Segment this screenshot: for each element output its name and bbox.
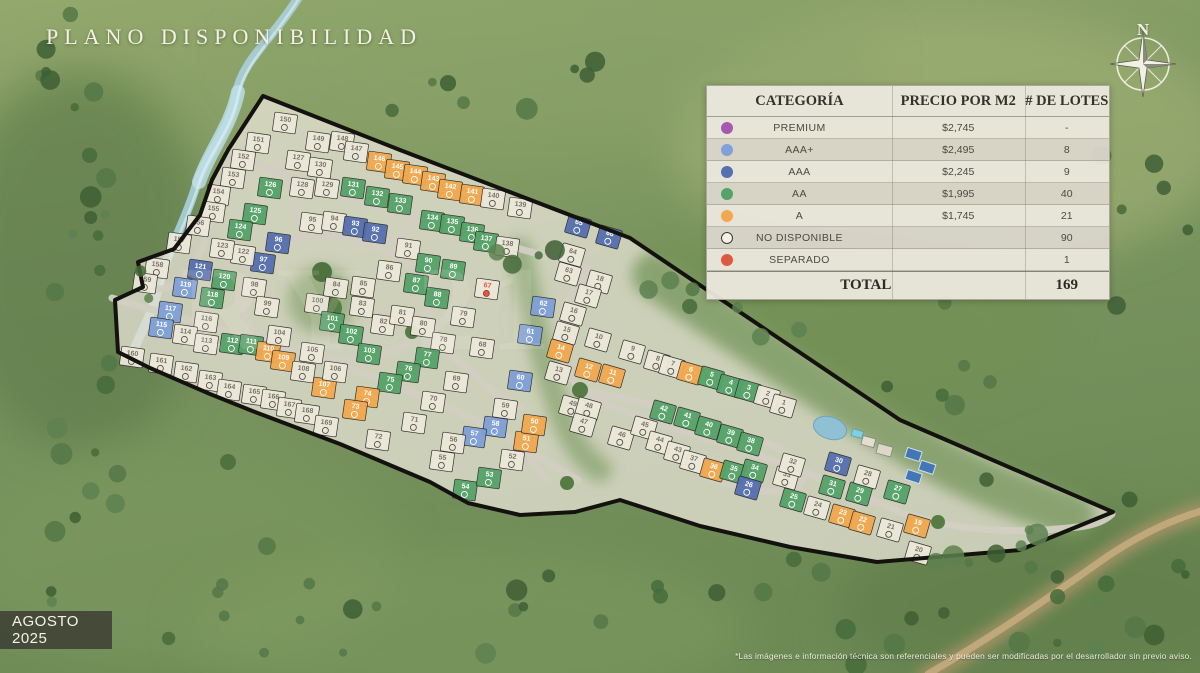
tree [754,583,772,601]
legend-header-row: CATEGORÍA PRECIO POR M2 # DE LOTES [707,86,1109,117]
tree [489,244,506,261]
svg-text:75: 75 [386,376,395,384]
svg-text:88: 88 [433,291,442,299]
lot-52: 52 [499,449,524,471]
svg-text:94: 94 [330,215,339,223]
tree [570,65,579,74]
svg-text:60: 60 [516,374,525,382]
compass-icon [1103,22,1183,106]
lot-119: 119 [172,277,197,299]
legend-category-label: A [796,210,803,222]
tree [82,148,97,163]
svg-text:99: 99 [263,300,272,308]
lot-121: 121 [187,259,212,281]
tree [516,98,538,120]
legend-category-label: PREMIUM [773,122,825,134]
tree [1117,204,1127,214]
legend-category-label: AA [792,188,807,200]
lot-151: 151 [245,132,270,154]
lot-96: 96 [265,232,290,254]
tree [440,75,456,91]
legend-price: $1,995 [892,188,1025,200]
lot-108: 108 [290,361,315,383]
legend-lot-count: 9 [1025,166,1109,178]
svg-text:54: 54 [461,483,470,491]
svg-text:76: 76 [404,365,413,373]
tree [580,67,595,82]
lot-150: 150 [272,112,297,134]
lot-104: 104 [266,325,291,347]
tree [506,579,527,600]
svg-text:62: 62 [539,300,548,308]
tree [1145,155,1163,173]
svg-text:96: 96 [274,236,283,244]
svg-text:70: 70 [429,395,438,403]
lot-71: 71 [401,412,426,434]
lot-68: 68 [469,337,494,359]
tree [938,607,950,619]
legend-row-aaa-: AAA+$2,4958 [707,139,1109,161]
lot-88: 88 [424,287,449,309]
tree [1107,296,1126,315]
tree [296,616,305,625]
date-badge-text: AGOSTO 2025 [0,613,112,647]
svg-text:87: 87 [412,277,421,285]
lot-56: 56 [440,432,465,454]
tree [63,7,78,22]
svg-text:95: 95 [308,216,317,224]
legend-total-value: 169 [1025,277,1109,294]
legend-price: $2,245 [892,166,1025,178]
legend-swatch [721,254,733,266]
tree [475,643,496,664]
lot-118: 118 [199,287,224,309]
tree [1182,225,1193,236]
lot-75: 75 [377,372,402,394]
tree [535,251,543,259]
tree [881,381,893,393]
tree [106,494,125,513]
svg-text:73: 73 [351,403,360,411]
tree [47,418,68,439]
svg-text:91: 91 [404,242,413,250]
tree [68,229,77,238]
legend-price: $1,745 [892,210,1025,222]
tree [372,601,382,611]
tree [101,210,110,219]
legend-row-separado: SEPARADO1 [707,249,1109,271]
tree [97,376,115,394]
tree [682,299,697,314]
tree [101,355,118,372]
tree [84,82,103,101]
tree [339,649,347,657]
lot-106: 106 [322,361,347,383]
tree [70,512,81,523]
page-title: PLANO DISPONIBILIDAD [46,24,422,50]
legend-lot-count: 90 [1025,232,1109,244]
tree [1157,181,1171,195]
svg-text:51: 51 [522,435,531,443]
tree [1016,540,1027,551]
tree [661,271,679,289]
lot-95: 95 [299,212,324,234]
lot-60: 60 [507,370,532,392]
lot-114: 114 [172,324,197,346]
tree [519,602,529,612]
tree [1092,596,1102,606]
tree [542,569,555,582]
compass-rose: N [1103,22,1183,126]
svg-text:50: 50 [530,418,539,426]
tree [1009,632,1030,653]
lot-55: 55 [429,450,454,472]
lot-153: 153 [220,167,245,189]
disclaimer-text: *Las imágenes e información técnica son … [735,651,1192,661]
column-separator [1025,86,1026,299]
lot-85: 85 [350,276,375,298]
tree [51,443,73,465]
legend-header-lots: # DE LOTES [1025,93,1109,110]
tree [594,614,609,629]
svg-text:57: 57 [470,430,479,438]
tree [653,588,668,603]
lot-105: 105 [299,342,324,364]
tree [457,96,470,109]
tree [503,255,522,274]
tree [212,587,223,598]
legend-header-price: PRECIO POR M2 [892,93,1025,110]
legend-category-label: AAA+ [785,144,814,156]
lot-102: 102 [338,324,363,346]
lot-127: 127 [285,150,310,172]
legend-lot-count: 1 [1025,254,1109,266]
lot-133: 133 [387,193,412,215]
legend-category-label: SEPARADO [769,254,830,266]
lot-147: 147 [343,141,368,163]
tree [904,611,918,625]
tree [45,521,66,542]
lot-79: 79 [450,306,475,328]
lot-62: 62 [530,296,555,318]
lot-72: 72 [365,429,390,451]
tree [958,360,970,372]
lot-69: 69 [443,371,468,393]
lot-80: 80 [410,316,435,338]
svg-text:82: 82 [379,318,388,326]
lot-67: 67 [474,278,499,300]
legend-row-premium: PREMIUM$2,745- [707,117,1109,139]
legend-price: $2,745 [892,122,1025,134]
lot-91: 91 [395,238,420,260]
tree [80,186,102,208]
tree [1122,492,1138,508]
lot-131: 131 [340,177,365,199]
tree [943,545,965,567]
tree [343,599,363,619]
tree [93,230,104,241]
column-separator [892,86,893,299]
tree [1024,561,1037,574]
lot-140: 140 [480,188,505,210]
svg-text:90: 90 [424,257,433,265]
svg-text:97: 97 [259,256,268,264]
svg-text:52: 52 [508,453,517,461]
svg-text:68: 68 [478,341,487,349]
legend-header-category: CATEGORÍA [707,93,892,110]
tree [965,558,974,567]
tree [791,322,807,338]
lot-123: 123 [209,238,234,260]
svg-text:67: 67 [483,282,492,290]
date-badge: AGOSTO 2025 [0,611,112,649]
tree [94,265,105,276]
tree [144,294,153,303]
lot-84: 84 [323,277,348,299]
lot-126: 126 [257,177,282,199]
lot-103: 103 [356,343,381,365]
lot-53: 53 [476,467,501,489]
legend-swatch [721,144,733,156]
tree [983,375,997,389]
svg-text:59: 59 [501,402,510,410]
svg-text:93: 93 [351,220,360,228]
svg-text:86: 86 [385,264,394,272]
legend-lot-count: - [1025,122,1109,134]
lot-86: 86 [376,260,401,282]
legend-lot-count: 40 [1025,188,1109,200]
lot-128: 128 [289,177,314,199]
svg-text:85: 85 [359,280,368,288]
legend-swatch [721,122,733,134]
lot-83: 83 [349,296,374,318]
legend-row-a: A$1,74521 [707,205,1109,227]
lot-142: 142 [437,179,462,201]
tree [71,103,79,111]
legend-swatch [721,232,733,244]
legend-rows: PREMIUM$2,745-AAA+$2,4958AAA$2,2459AA$1,… [707,117,1109,271]
lot-132: 132 [364,186,389,208]
svg-text:56: 56 [449,436,458,444]
svg-text:92: 92 [371,226,380,234]
legend-row-no-disponible: NO DISPONIBLE90 [707,227,1109,249]
lot-129: 129 [314,177,339,199]
lot-70: 70 [420,391,445,413]
svg-text:83: 83 [358,300,367,308]
tree [686,282,700,296]
tree [40,70,60,90]
legend-swatch [721,210,733,222]
tree [979,472,993,486]
legend-lot-count: 8 [1025,144,1109,156]
tree [47,597,57,607]
tree [928,553,945,570]
lot-124: 124 [227,219,252,241]
availability-legend-table: CATEGORÍA PRECIO POR M2 # DE LOTES PREMI… [706,85,1110,300]
tree [786,552,802,568]
tree [1025,525,1034,534]
lot-130: 130 [307,157,332,179]
tree [545,240,565,260]
svg-text:69: 69 [452,375,461,383]
tree [258,537,276,555]
svg-text:58: 58 [491,420,500,428]
lot-90: 90 [415,253,440,275]
tree [46,586,57,597]
lot-115: 115 [148,317,173,339]
svg-text:72: 72 [374,433,383,441]
svg-text:74: 74 [363,390,372,398]
tree [1098,576,1115,593]
svg-text:55: 55 [438,454,447,462]
svg-text:89: 89 [449,263,458,271]
tree [91,448,99,456]
lot-99: 99 [254,296,279,318]
tree [1125,616,1147,638]
tree [639,280,658,299]
svg-text:81: 81 [398,309,407,317]
tree [1144,625,1165,646]
plano-disponibilidad-screen: 1501511521531541551561571581591491481471… [0,0,1200,673]
svg-text:79: 79 [459,310,468,318]
tree [135,265,146,276]
legend-total-row: TOTAL 169 [707,271,1109,299]
lot-120: 120 [211,269,236,291]
lot-89: 89 [440,259,465,281]
legend-row-aa: AA$1,99540 [707,183,1109,205]
legend-price: $2,495 [892,144,1025,156]
tree [259,648,269,658]
legend-swatch [721,166,733,178]
lot-152: 152 [230,149,255,171]
lot-92: 92 [362,222,387,244]
lot-87: 87 [403,273,428,295]
legend-row-aaa: AAA$2,2459 [707,161,1109,183]
legend-category-label: AAA [788,166,810,178]
svg-text:78: 78 [439,336,448,344]
tree [82,482,99,499]
tree [836,619,856,639]
tree [162,632,175,645]
svg-text:53: 53 [485,471,494,479]
lot-98: 98 [241,277,266,299]
tree [428,78,437,87]
tree [1050,589,1065,604]
tree [385,104,398,117]
tree [1051,570,1065,584]
tree [46,283,64,301]
tree [96,168,116,188]
lot-73: 73 [342,399,367,421]
lot-50: 50 [521,414,546,436]
tree [812,563,831,582]
lot-61: 61 [517,324,542,346]
lot-59: 59 [492,398,517,420]
lot-113: 113 [193,333,218,355]
tree [752,328,770,346]
svg-text:98: 98 [250,281,259,289]
legend-swatch [721,188,733,200]
tree [708,584,725,601]
tree [219,611,230,622]
tree [987,545,1005,563]
svg-text:77: 77 [423,351,432,359]
legend-category-label: NO DISPONIBLE [756,232,843,244]
svg-text:71: 71 [410,416,419,424]
svg-text:61: 61 [526,328,535,336]
tree [304,578,316,590]
lot-81: 81 [389,305,414,327]
legend-lot-count: 21 [1025,210,1109,222]
legend-total-label: TOTAL [707,277,1025,294]
tree [732,302,743,313]
tree [1181,570,1190,579]
svg-text:80: 80 [419,320,428,328]
lot-149: 149 [305,131,330,153]
svg-text:84: 84 [332,281,341,289]
tree [109,465,127,483]
tree [936,389,949,402]
tree [84,211,97,224]
tree [1053,639,1061,647]
